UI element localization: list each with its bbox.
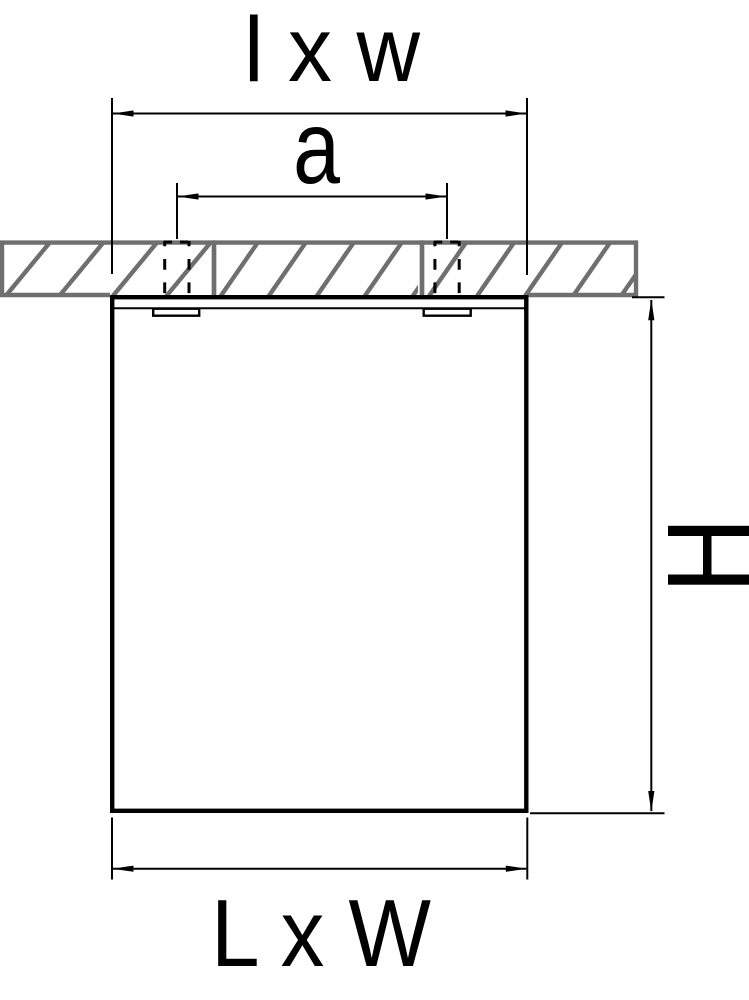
- svg-text:a: a: [293, 90, 340, 206]
- svg-text:L x W: L x W: [211, 880, 431, 987]
- svg-text:l x w: l x w: [244, 0, 421, 101]
